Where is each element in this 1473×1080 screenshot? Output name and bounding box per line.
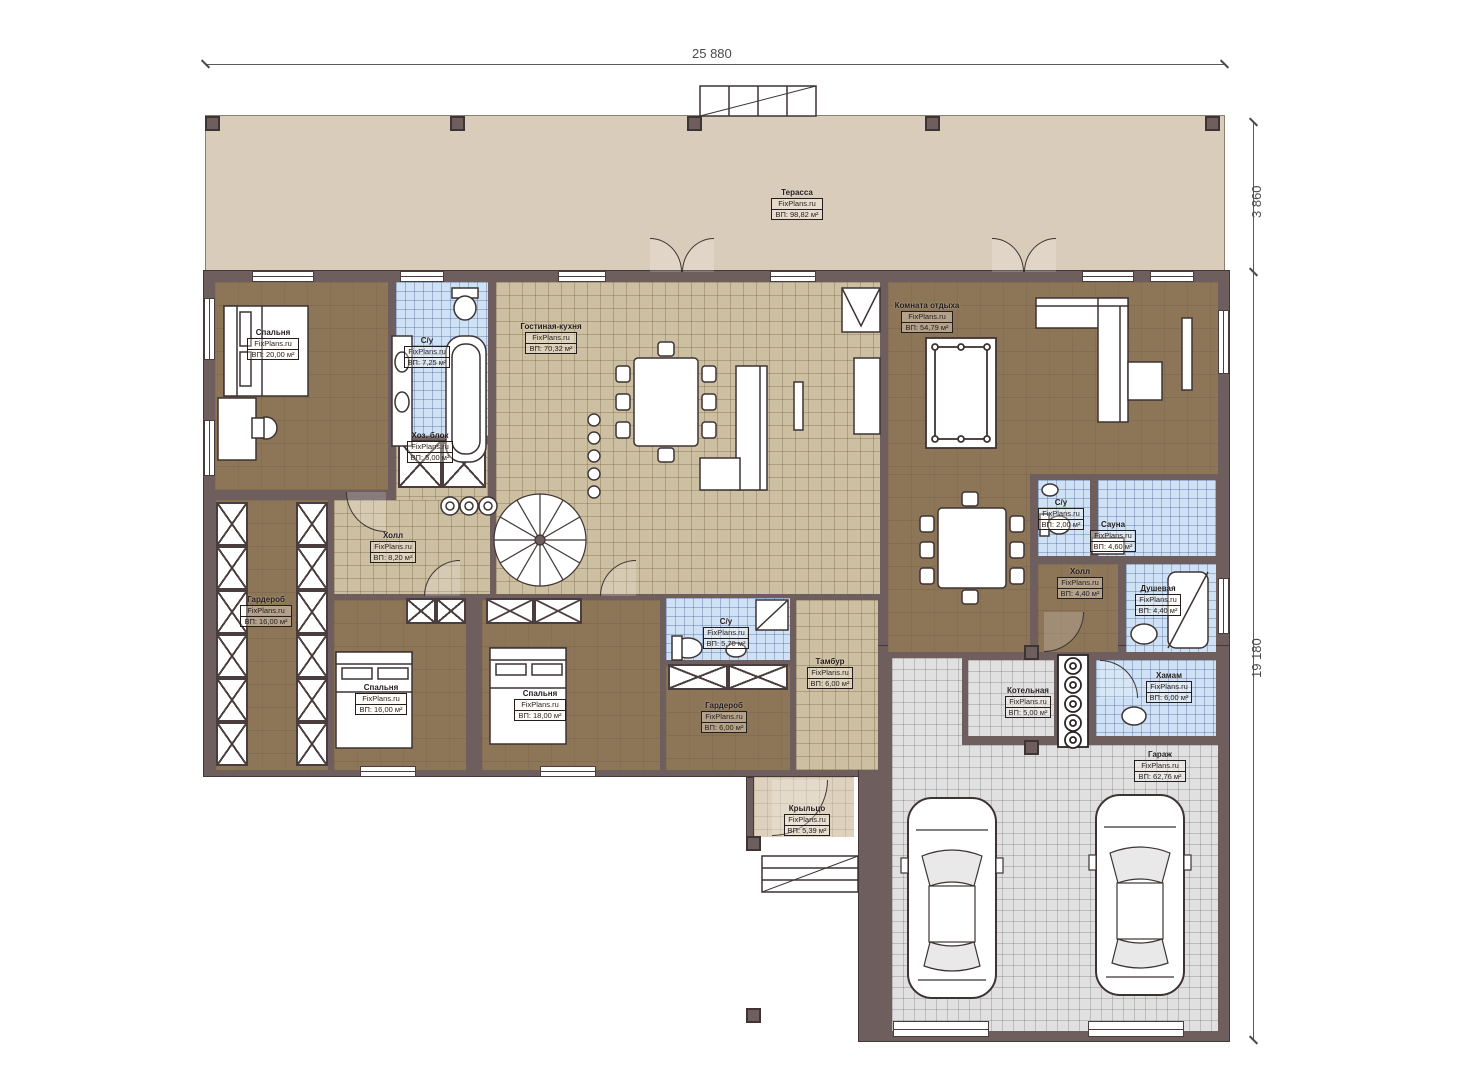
room-area: ВП: 20,00 м²	[248, 350, 297, 359]
room-area: ВП: 6,00 м²	[808, 679, 853, 688]
room-label-bedroom-18: Спальня FixPlans.ruВП: 18,00 м²	[502, 689, 578, 723]
room-label-sauna: Сауна FixPlans.ruВП: 4,60 м²	[1075, 520, 1151, 554]
terrace-post	[687, 116, 702, 131]
watermark: FixPlans.ru	[248, 339, 297, 349]
room-area: ВП: 62,76 м²	[1135, 772, 1184, 781]
porch-steps-icon	[762, 856, 858, 892]
watermark: FixPlans.ru	[1058, 578, 1103, 588]
room-label-wardrobe-small: Гардероб FixPlans.ruВП: 6,00 м²	[686, 701, 762, 735]
floor-plan: 25 880 3 860 19 180	[0, 0, 1473, 1080]
closet-cell	[668, 664, 728, 690]
garage-door	[1088, 1021, 1184, 1037]
watermark: FixPlans.ru	[702, 712, 747, 722]
room-area: ВП: 8,20 м²	[371, 553, 416, 562]
closet-cell	[216, 546, 248, 590]
room-name: Сауна	[1075, 520, 1151, 529]
closet-cell	[296, 502, 328, 546]
room-area: ВП: 16,00 м²	[356, 705, 405, 714]
watermark: FixPlans.ru	[1135, 761, 1184, 771]
room-name: Крыльцо	[769, 804, 845, 813]
room-label-bedroom-16: Спальня FixPlans.ruВП: 16,00 м²	[343, 683, 419, 717]
closet-cell	[728, 664, 788, 690]
room-name: Спальня	[343, 683, 419, 692]
terrace-post	[925, 116, 940, 131]
watermark: FixPlans.ru	[356, 694, 405, 704]
terrace-post	[205, 116, 220, 131]
watermark: FixPlans.ru	[241, 606, 290, 616]
room-label-boiler: Котельная FixPlans.ruВП: 5,00 м²	[990, 686, 1066, 720]
room-name: Гардероб	[228, 595, 304, 604]
room-area: ВП: 4,40 м²	[1058, 589, 1103, 598]
room-name: Спальня	[235, 328, 311, 337]
room-name: С/у	[688, 617, 764, 626]
dimension-line-top	[205, 64, 1225, 65]
room-area: ВП: 4,40 м²	[1136, 606, 1181, 615]
room-area: ВП: 5,00 м²	[408, 453, 453, 462]
dimension-terrace-depth-value: 3 860	[1249, 185, 1264, 218]
room-name: Комната отдыха	[889, 301, 965, 310]
terrace-post	[450, 116, 465, 131]
column-marker	[746, 836, 761, 851]
room-area: ВП: 6,00 м²	[702, 723, 747, 732]
room-label-terrace: Терасса FixPlans.ruВП: 98,82 м²	[759, 188, 835, 222]
room-name: Терасса	[759, 188, 835, 197]
room-name: Спальня	[502, 689, 578, 698]
column-marker	[1024, 645, 1039, 660]
watermark: FixPlans.ru	[1091, 531, 1136, 541]
room-label-bathroom-top: С/у FixPlans.ruВП: 7,25 м²	[389, 336, 465, 370]
window	[1218, 310, 1229, 374]
room-area: ВП: 98,82 м²	[772, 210, 821, 219]
room-name: Тамбур	[792, 657, 868, 666]
watermark: FixPlans.ru	[1039, 509, 1084, 519]
porch-side-wall	[746, 777, 754, 839]
watermark: FixPlans.ru	[785, 815, 830, 825]
watermark: FixPlans.ru	[408, 442, 453, 452]
window	[558, 271, 606, 282]
room-bedroom-18	[482, 600, 660, 770]
closet-cell	[216, 678, 248, 722]
room-name: Холл	[355, 531, 431, 540]
room-name: Хоз. блок	[392, 431, 468, 440]
watermark: FixPlans.ru	[772, 199, 821, 209]
room-name: С/у	[389, 336, 465, 345]
watermark: FixPlans.ru	[371, 542, 416, 552]
room-area: ВП: 7,25 м²	[405, 358, 450, 367]
room-label-living-kitchen: Гостиная-кухня FixPlans.ruВП: 70,32 м²	[513, 322, 589, 356]
window	[400, 271, 444, 282]
watermark: FixPlans.ru	[1006, 697, 1051, 707]
room-label-bedroom-main: Спальня FixPlans.ruВП: 20,00 м²	[235, 328, 311, 362]
window	[1150, 271, 1194, 282]
watermark: FixPlans.ru	[704, 628, 749, 638]
room-name: С/у	[1023, 498, 1099, 507]
window	[204, 420, 215, 476]
column-marker	[746, 1008, 761, 1023]
room-label-lounge: Комната отдыха FixPlans.ruВП: 54,79 м²	[889, 301, 965, 335]
room-name: Холл	[1042, 567, 1118, 576]
room-label-bathroom-bottom: С/у FixPlans.ruВП: 5,70 м²	[688, 617, 764, 651]
room-name: Гардероб	[686, 701, 762, 710]
closet-cell	[216, 634, 248, 678]
room-area: ВП: 16,00 м²	[241, 617, 290, 626]
room-label-vestibule: Тамбур FixPlans.ruВП: 6,00 м²	[792, 657, 868, 691]
closet-cell	[534, 598, 582, 624]
terrace-post	[1205, 116, 1220, 131]
room-label-hall-sauna: Холл FixPlans.ruВП: 4,40 м²	[1042, 567, 1118, 601]
room-label-hall-left: Холл FixPlans.ruВП: 8,20 м²	[355, 531, 431, 565]
watermark: FixPlans.ru	[902, 312, 951, 322]
window	[1082, 271, 1134, 282]
room-label-hammam: Хамам FixPlans.ruВП: 6,00 м²	[1131, 671, 1207, 705]
window	[770, 271, 816, 282]
room-name: Душевая	[1120, 584, 1196, 593]
room-area: ВП: 5,00 м²	[1006, 708, 1051, 717]
window	[540, 766, 596, 777]
terrace-deck	[205, 115, 1225, 272]
closet-cell	[296, 634, 328, 678]
garage-door	[893, 1021, 989, 1037]
room-garage	[892, 745, 1218, 1031]
watermark: FixPlans.ru	[1147, 682, 1192, 692]
room-label-shower: Душевая FixPlans.ruВП: 4,40 м²	[1120, 584, 1196, 618]
dimension-width-value: 25 880	[692, 46, 732, 61]
closet-cell	[216, 502, 248, 546]
window	[360, 766, 416, 777]
watermark: FixPlans.ru	[515, 700, 564, 710]
room-bedroom-main	[215, 282, 388, 490]
closet-cell	[296, 678, 328, 722]
closet-cell	[436, 598, 466, 624]
watermark: FixPlans.ru	[808, 668, 853, 678]
watermark: FixPlans.ru	[1136, 595, 1181, 605]
watermark: FixPlans.ru	[405, 347, 450, 357]
column-marker	[1024, 740, 1039, 755]
room-name: Котельная	[990, 686, 1066, 695]
terrace-steps-icon	[700, 86, 816, 116]
room-area: ВП: 5,70 м²	[704, 639, 749, 648]
closet-cell	[296, 546, 328, 590]
room-name: Гостиная-кухня	[513, 322, 589, 331]
room-label-garage: Гараж FixPlans.ruВП: 62,76 м²	[1122, 750, 1198, 784]
room-area: ВП: 5,39 м²	[785, 826, 830, 835]
closet-cell	[216, 722, 248, 766]
window	[204, 298, 215, 360]
dimension-house-depth-value: 19 180	[1249, 638, 1264, 678]
room-area: ВП: 4,60 м²	[1091, 542, 1136, 551]
room-area: ВП: 6,00 м²	[1147, 693, 1192, 702]
watermark: FixPlans.ru	[526, 333, 575, 343]
room-lounge-dining	[888, 474, 1030, 652]
closet-cell	[296, 722, 328, 766]
room-name: Хамам	[1131, 671, 1207, 680]
room-garage-arm	[892, 658, 962, 745]
window	[1218, 578, 1229, 634]
room-label-wardrobe-left: Гардероб FixPlans.ruВП: 16,00 м²	[228, 595, 304, 629]
room-label-utility: Хоз. блок FixPlans.ruВП: 5,00 м²	[392, 431, 468, 465]
closet-cell	[486, 598, 534, 624]
room-area: ВП: 70,32 м²	[526, 344, 575, 353]
room-area: ВП: 18,00 м²	[515, 711, 564, 720]
room-label-porch: Крыльцо FixPlans.ruВП: 5,39 м²	[769, 804, 845, 838]
room-name: Гараж	[1122, 750, 1198, 759]
closet-cell	[406, 598, 436, 624]
window	[252, 271, 314, 282]
room-area: ВП: 54,79 м²	[902, 323, 951, 332]
